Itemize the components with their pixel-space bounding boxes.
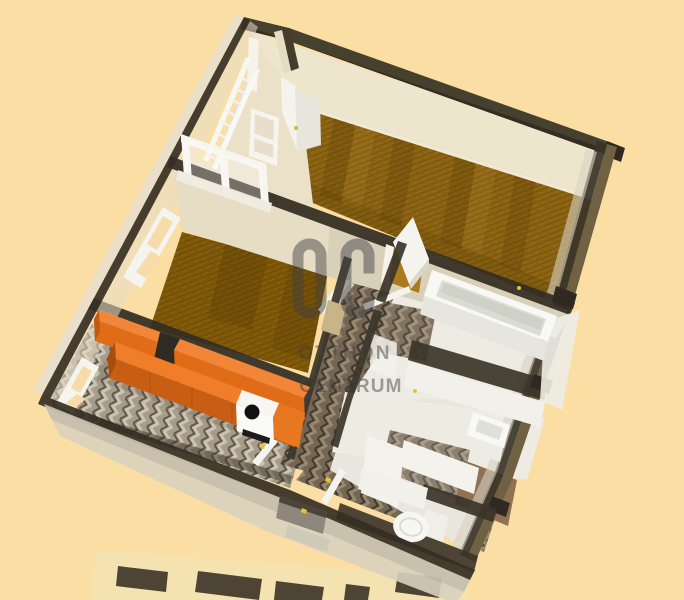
- svg-text:OTTHON: OTTHON: [298, 343, 391, 364]
- svg-text:CENTRUM: CENTRUM: [299, 376, 402, 397]
